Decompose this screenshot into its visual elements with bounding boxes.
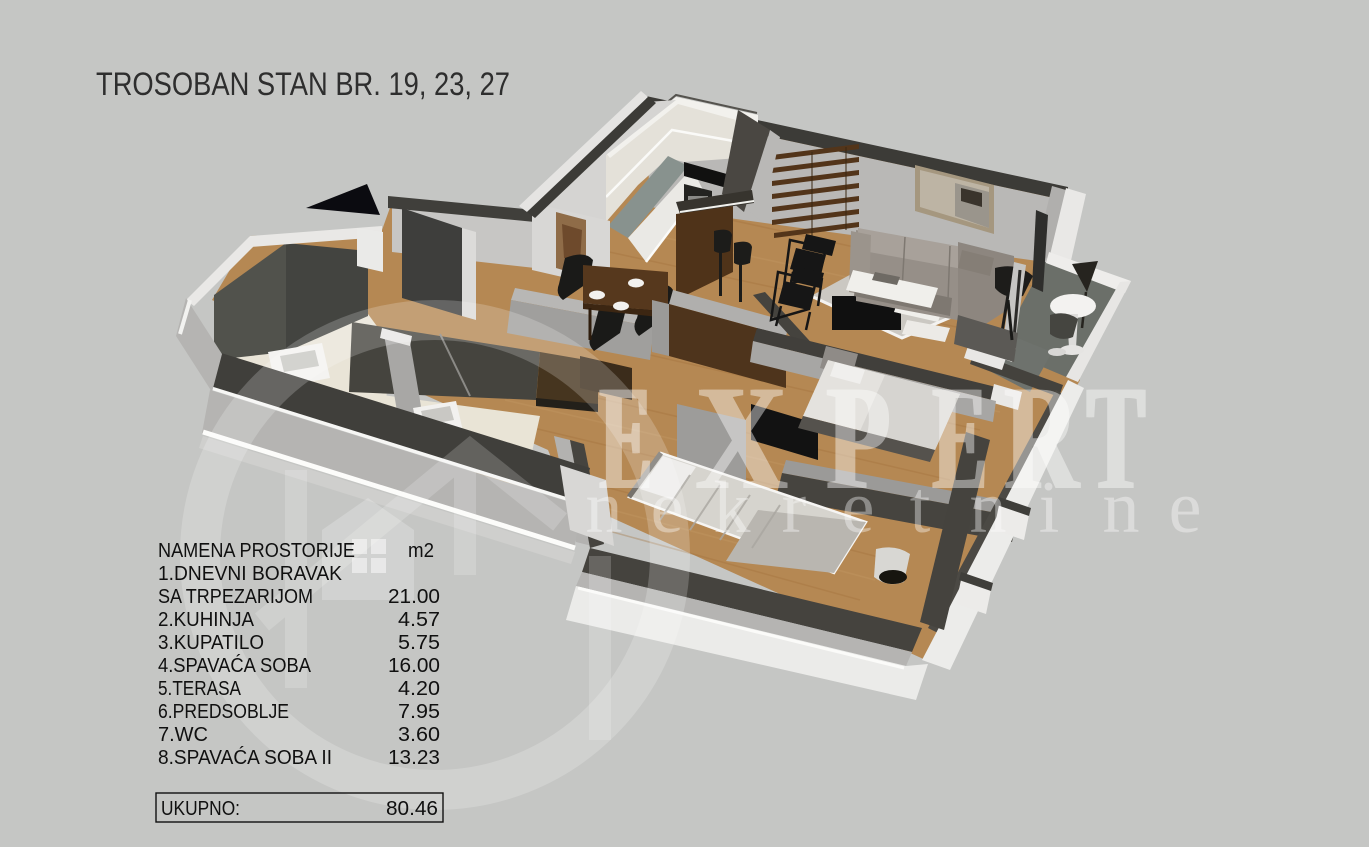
svg-text:21.00: 21.00 xyxy=(388,586,440,608)
svg-text:n: n xyxy=(586,467,623,549)
svg-text:7.95: 7.95 xyxy=(398,701,440,723)
svg-text:1.DNEVNI BORAVAK: 1.DNEVNI BORAVAK xyxy=(158,563,343,585)
svg-text:k: k xyxy=(714,467,751,549)
svg-text:UKUPNO:: UKUPNO: xyxy=(161,798,240,820)
svg-text:t: t xyxy=(910,467,931,549)
svg-text:5.TERASA: 5.TERASA xyxy=(158,678,242,700)
svg-text:SA TRPEZARIJOM: SA TRPEZARIJOM xyxy=(158,586,313,608)
svg-text:n: n xyxy=(970,467,1007,549)
svg-text:8.SPAVAĆA SOBA II: 8.SPAVAĆA SOBA II xyxy=(158,746,332,769)
svg-text:4.20: 4.20 xyxy=(398,678,440,700)
svg-text:2.KUHINJA: 2.KUHINJA xyxy=(158,609,255,631)
svg-text:e: e xyxy=(842,467,875,549)
svg-text:3.KUPATILO: 3.KUPATILO xyxy=(158,632,264,654)
svg-text:TROSOBAN STAN BR. 19, 23, 27: TROSOBAN STAN BR. 19, 23, 27 xyxy=(96,66,510,102)
svg-text:r: r xyxy=(782,467,807,549)
svg-text:NAMENA PROSTORIJE: NAMENA PROSTORIJE xyxy=(158,540,355,562)
svg-text:6.PREDSOBLJE: 6.PREDSOBLJE xyxy=(158,701,289,723)
svg-text:5.75: 5.75 xyxy=(398,632,440,654)
svg-text:7.WC: 7.WC xyxy=(158,724,208,746)
svg-text:i: i xyxy=(1039,467,1060,549)
svg-text:e: e xyxy=(651,467,684,549)
svg-text:m2: m2 xyxy=(408,540,434,562)
svg-text:e: e xyxy=(1169,467,1202,549)
svg-text:13.23: 13.23 xyxy=(388,747,440,769)
svg-text:16.00: 16.00 xyxy=(388,655,440,677)
svg-text:80.46: 80.46 xyxy=(386,798,438,820)
svg-text:4.SPAVAĆA SOBA: 4.SPAVAĆA SOBA xyxy=(158,654,312,677)
svg-text:3.60: 3.60 xyxy=(398,724,440,746)
svg-text:n: n xyxy=(1103,467,1140,549)
svg-text:4.57: 4.57 xyxy=(398,609,440,631)
